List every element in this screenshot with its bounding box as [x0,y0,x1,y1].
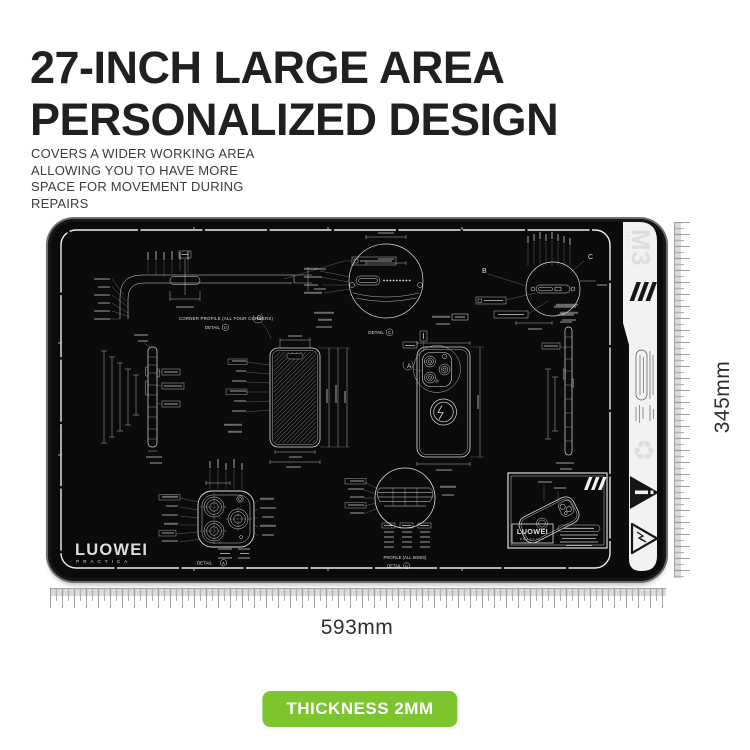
callout-letter-a: A [222,560,225,565]
subtitle-line: ALLOWING YOU TO HAVE MORE [31,163,255,180]
detail-word: DETAIL [205,325,221,330]
phone-back-drawing: A [403,331,484,470]
repair-mat: M3 PRACTICA ♻ [48,219,666,581]
callout-letter-d: D [257,315,262,322]
right-strip: M3 PRACTICA ♻ [623,222,659,571]
side-profile-right [542,306,576,469]
phone-front-drawing: D [224,314,350,467]
callout-letter-b: B [482,268,487,275]
title-line-1: 27-INCH LARGE AREA [30,42,558,94]
height-dimension-label: 345mm [711,342,735,452]
height-ruler [674,222,694,578]
brand-name: LUOWEI [75,541,148,559]
callout-letter-d: D [224,325,227,330]
width-ruler [50,588,666,612]
side-profile-left [101,335,184,463]
width-dimension-label: 593mm [48,616,666,640]
corner-profile-drawing: CORNER PROFILE (ALL FOUR CORNERS) DETAIL… [94,251,396,331]
callout-letter-c: C [588,254,593,261]
profile-all-sides-label: PROFILE (ALL SIDES) [384,555,428,560]
model-label: M3 [626,229,656,266]
thickness-badge: THICKNESS 2MM [262,691,457,727]
title-block-brand-sub: PRACTICA [520,538,545,541]
title-line-2: PERSONALIZED DESIGN [30,94,558,146]
subtitle-line: REPAIRS [31,196,255,213]
port-detail-drawing: B C [476,232,607,329]
page-subtitle: COVERS A WIDER WORKING AREA ALLOWING YOU… [31,146,255,212]
callout-letter-c: C [388,330,391,335]
product-banner: 27-INCH LARGE AREA PERSONALIZED DESIGN C… [0,0,750,750]
annotation-rows [314,312,468,327]
detail-word: DETAIL [197,561,213,566]
profile-detail-drawing: PROFILE (ALL SIDES) DETAIL D [345,468,456,569]
subtitle-line: COVERS A WIDER WORKING AREA [31,146,255,163]
model-sub-label: PRACTICA [625,231,629,260]
brand-stripes-icon [584,477,607,490]
recycle-icon: ♻ [632,436,656,466]
subtitle-line: SPACE FOR MOVEMENT DURING [31,179,255,196]
detail-word: DETAIL [368,330,384,335]
callout-letter-a: A [407,363,412,370]
title-block-brand: LUOWEI [517,527,548,536]
brand-logo: LUOWEI PRACTICA [75,541,148,564]
callout-letter-d: D [405,564,408,568]
camera-detail-drawing: DETAIL A [159,459,276,566]
page-title: 27-INCH LARGE AREA PERSONALIZED DESIGN [30,42,558,146]
title-block: LUOWEI PRACTICA [508,473,607,548]
mat-inner-border [58,227,610,571]
detail-word: DETAIL [387,564,402,569]
brand-sub-name: PRACTICA [76,559,131,564]
